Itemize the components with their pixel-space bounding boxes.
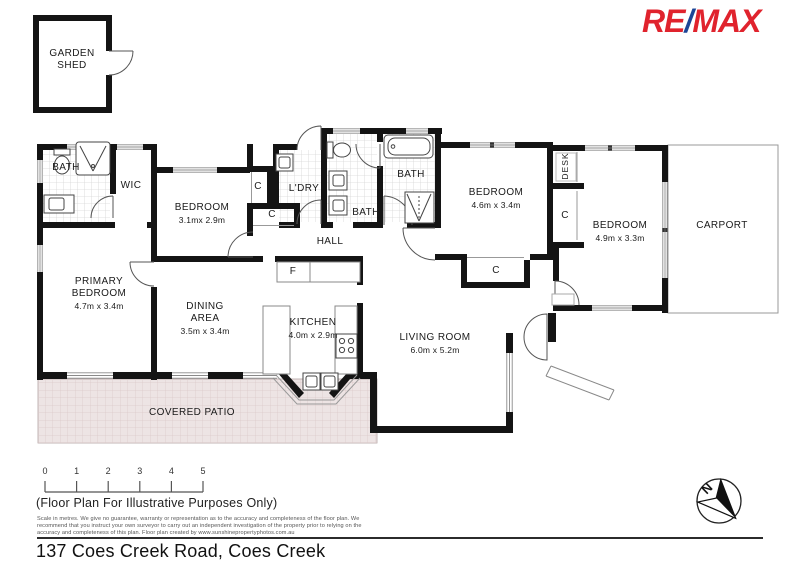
- bathtub-icon: [384, 135, 433, 158]
- fridge-label: F: [290, 266, 297, 278]
- scale-number: 1: [74, 466, 79, 476]
- disclaimer-line: recommend that you instruct your own sur…: [37, 523, 362, 529]
- scale-number: 3: [137, 466, 142, 476]
- logo-max: MAX: [692, 3, 760, 39]
- remax-logo: RE/MAX: [642, 3, 760, 40]
- room-label-dining: DINING AREA 3.5m x 3.4m: [181, 301, 230, 337]
- scale-number: 4: [169, 466, 174, 476]
- disclaimer-line: accuracy and completeness of this plan. …: [37, 530, 295, 536]
- room-label-hall: HALL: [317, 236, 344, 248]
- room-label-living: LIVING ROOM 6.0m x 5.2m: [399, 332, 470, 356]
- room-label-bedroom3: BEDROOM 4.6m x 3.4m: [469, 187, 523, 211]
- room-label-wic: WIC: [121, 180, 142, 192]
- entry-steps: [546, 366, 614, 400]
- scale-bar: [45, 481, 203, 492]
- room-label-bedroom2: BEDROOM 3.1mx 2.9m: [175, 202, 229, 226]
- compass-icon: N: [690, 472, 747, 529]
- garden-shed-label: GARDENSHED: [49, 48, 94, 72]
- closet-label: C: [561, 210, 569, 222]
- sink-icon: [321, 373, 338, 390]
- closet-label: C: [254, 181, 262, 193]
- room-label-primary-bedroom: PRIMARY BEDROOM 4.7m x 3.4m: [72, 276, 126, 312]
- room-label-bath-ensuite: BATH: [52, 162, 80, 174]
- toilet-icon: [327, 142, 351, 158]
- desk-label: DESK: [560, 152, 570, 179]
- room-label-bedroom4: BEDROOM 4.9m x 3.3m: [593, 220, 647, 244]
- logo-re: RE: [642, 3, 684, 39]
- floorplan-page: N RE/MAX GARDENSHED BATH WIC BEDROOM 3.1…: [0, 0, 800, 566]
- sink-icon: [303, 373, 320, 390]
- stove-icon: [336, 334, 357, 358]
- disclaimer-line: Scale in metres. We give no guarantee, w…: [37, 516, 359, 522]
- room-label-kitchen: KITCHEN 4.0m x 2.9m: [289, 317, 338, 341]
- closet-label: C: [268, 209, 276, 221]
- vanity-icon: [44, 195, 74, 213]
- illustrative-note: (Floor Plan For Illustrative Purposes On…: [36, 496, 277, 510]
- entry-door-swing: [524, 314, 547, 360]
- property-address: 137 Coes Creek Road, Coes Creek: [36, 541, 325, 562]
- washer-icon: [276, 154, 293, 171]
- scale-number: 0: [42, 466, 47, 476]
- room-label-bath-mid: BATH: [352, 207, 380, 219]
- compass-north-label: N: [698, 480, 715, 497]
- vanity-icon: [329, 196, 347, 215]
- room-label-laundry: L'DRY: [289, 183, 319, 195]
- vanity-icon: [329, 171, 347, 190]
- shower-icon: [76, 142, 110, 175]
- closet-label: C: [492, 265, 500, 277]
- room-label-bath-main: BATH: [397, 169, 425, 181]
- room-label-patio: COVERED PATIO: [149, 407, 235, 419]
- scale-number: 2: [106, 466, 111, 476]
- shower-icon: [405, 192, 434, 223]
- shed-door-swing: [109, 51, 133, 75]
- scale-number: 5: [200, 466, 205, 476]
- porch-step: [552, 294, 574, 305]
- room-label-carport: CARPORT: [696, 220, 748, 232]
- footer-divider: [37, 537, 763, 539]
